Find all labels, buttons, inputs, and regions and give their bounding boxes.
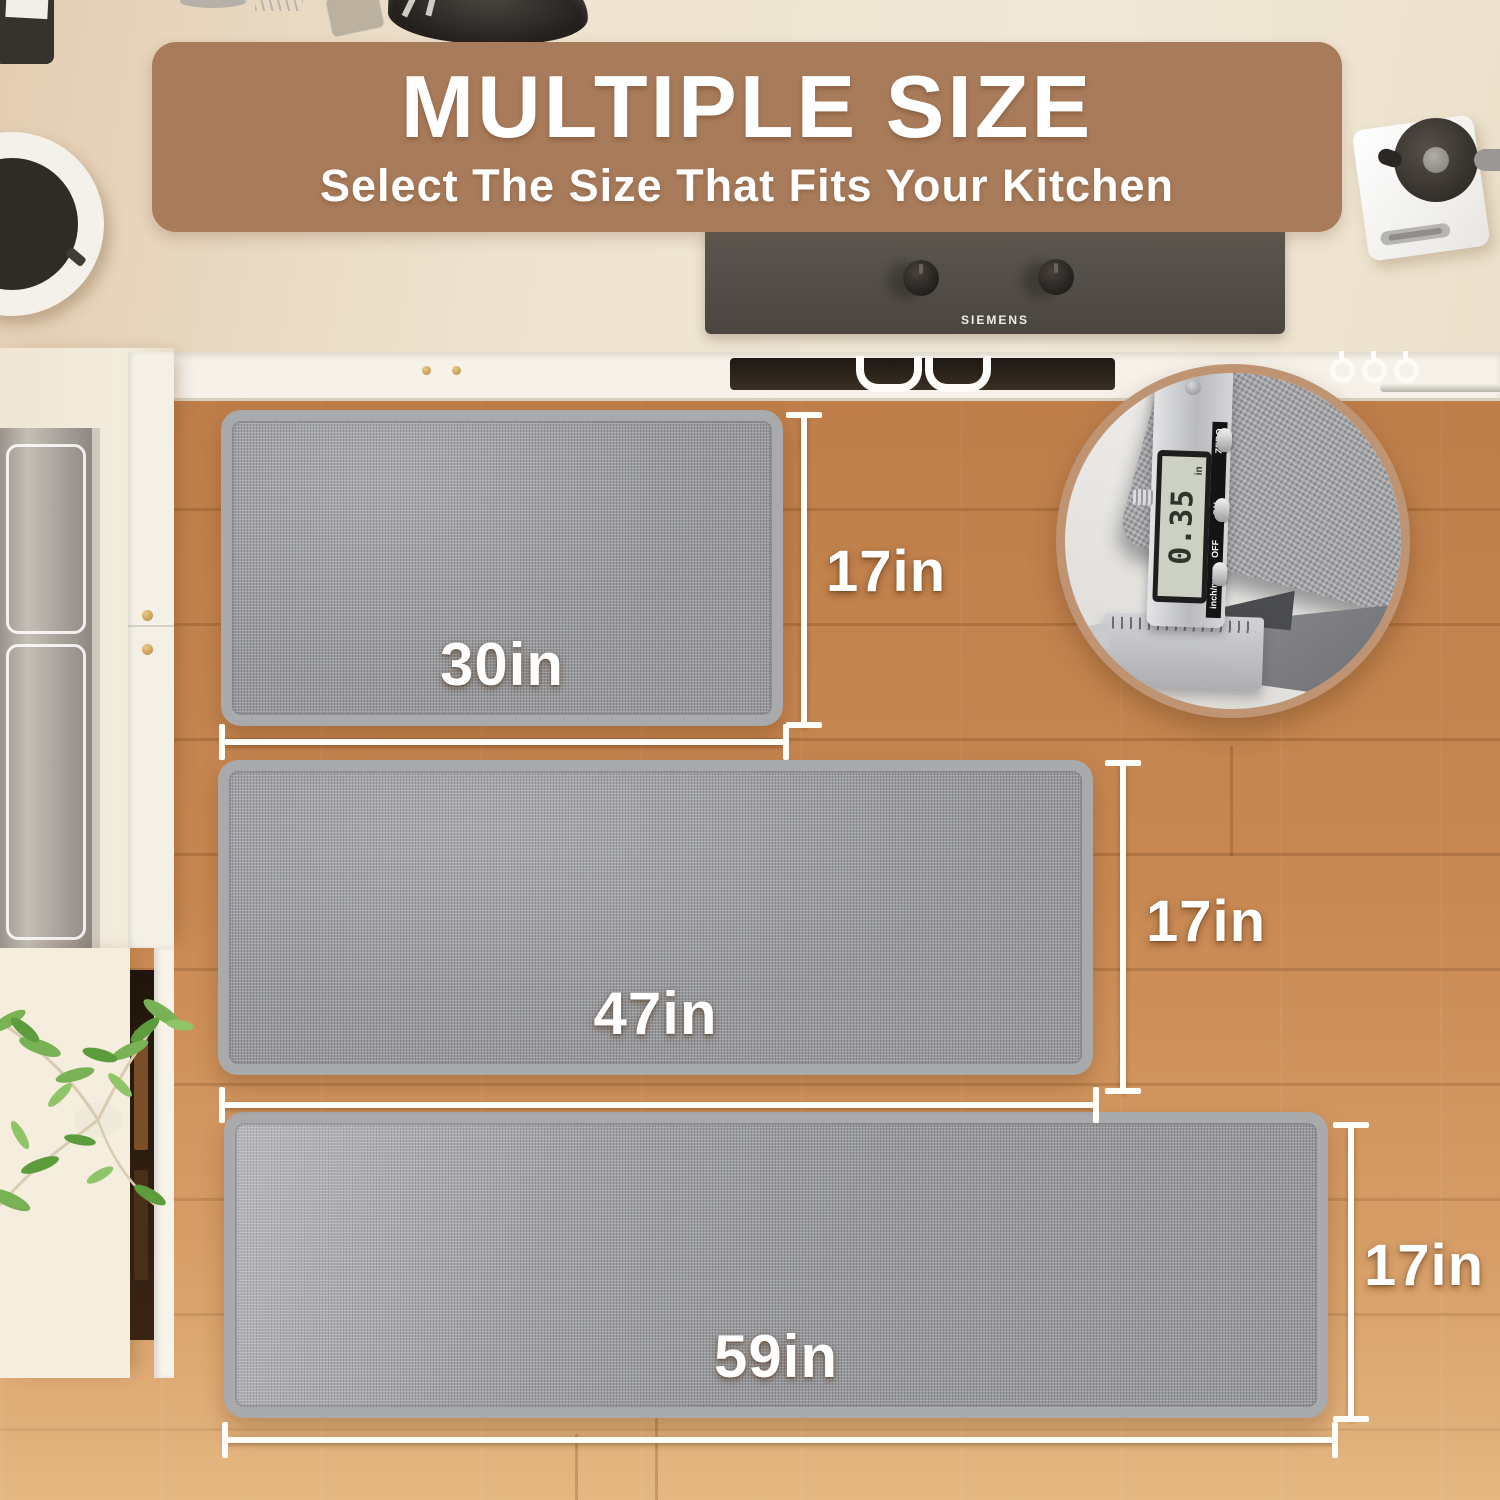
- mat-30x17: 30in: [221, 410, 783, 726]
- width-dimension-line-mat2: [221, 1102, 1097, 1108]
- drawer-knob: [452, 366, 461, 375]
- digital-caliper-body: 0.35 in ZERO ON OFF inch/mm: [1146, 364, 1233, 628]
- mat-47x17: 47in: [218, 760, 1093, 1075]
- caliper-button: [1212, 562, 1228, 587]
- caliper-button: [1214, 498, 1230, 523]
- stainless-appliance: [0, 428, 100, 948]
- height-dimension-label-mat1: 17in: [826, 538, 946, 605]
- caliper-display-frame: 0.35 in: [1152, 450, 1211, 604]
- cooktop-knob: [903, 260, 939, 296]
- cooktop-brand-label: SIEMENS: [705, 313, 1285, 327]
- caliper-thumb-wheel: [1133, 489, 1154, 506]
- mat-width-label: 59in: [714, 1322, 838, 1391]
- mat-59x17: 59in: [224, 1112, 1328, 1418]
- drawer-knob: [422, 366, 431, 375]
- height-dimension-label-mat3: 17in: [1364, 1232, 1484, 1299]
- appliance-drawer-panel: [6, 444, 86, 634]
- mat-width-label: 47in: [593, 979, 717, 1048]
- banner-subtitle: Select The Size That Fits Your Kitchen: [152, 160, 1342, 212]
- whisk: [255, 0, 303, 11]
- appliance-drawer-panel: [6, 644, 86, 940]
- width-dimension-line-mat3: [224, 1437, 1336, 1443]
- cooktop: SIEMENS: [705, 226, 1285, 334]
- caliper-reading: 0.35: [1163, 488, 1201, 565]
- header-banner: MULTIPLE SIZE Select The Size That Fits …: [152, 42, 1342, 232]
- caliper-off-label: OFF: [1210, 533, 1221, 565]
- door-knob: [142, 610, 153, 621]
- height-dimension-line-mat3: [1348, 1124, 1354, 1420]
- door-knob: [142, 644, 153, 655]
- cabinet-vent-slot: [730, 358, 1115, 390]
- left-cabinet-column: [0, 348, 174, 948]
- caliper-button: [1217, 428, 1233, 453]
- caliper-lcd: 0.35 in: [1157, 456, 1206, 597]
- pot-lid: [180, 0, 246, 8]
- floor-plank-seam: [1230, 746, 1233, 856]
- stand-mixer-bowl: [0, 132, 104, 316]
- caliper-screw: [1185, 379, 1202, 396]
- kettle-base-slot: [1380, 222, 1451, 246]
- electric-kettle-dark: [387, 0, 589, 47]
- floor-plank-seam: [655, 1418, 658, 1500]
- height-dimension-line-mat1: [801, 414, 807, 726]
- glass-cup: [324, 0, 385, 38]
- kitchen-mat-size-infographic: SIEMENS: [0, 0, 1500, 1500]
- potted-plant: [0, 955, 220, 1285]
- kettle-pot: [1394, 118, 1478, 202]
- cup-handle: [925, 356, 991, 392]
- mat-width-label: 30in: [440, 630, 564, 699]
- cooktop-knob: [1038, 259, 1074, 295]
- height-dimension-label-mat2: 17in: [1146, 888, 1266, 955]
- width-dimension-line-mat1: [221, 739, 787, 745]
- floor-plank-seam: [575, 1434, 578, 1500]
- banner-title: MULTIPLE SIZE: [152, 56, 1342, 158]
- height-dimension-line-mat2: [1120, 762, 1126, 1092]
- thickness-inset-circle: 0.35 in ZERO ON OFF inch/mm: [1056, 364, 1410, 718]
- caliper-unit: in: [1194, 466, 1205, 475]
- cup-handle: [856, 356, 922, 392]
- coffee-machine: [0, 0, 54, 64]
- kettle-handle: [1474, 149, 1500, 171]
- cabinet-door: [128, 352, 174, 948]
